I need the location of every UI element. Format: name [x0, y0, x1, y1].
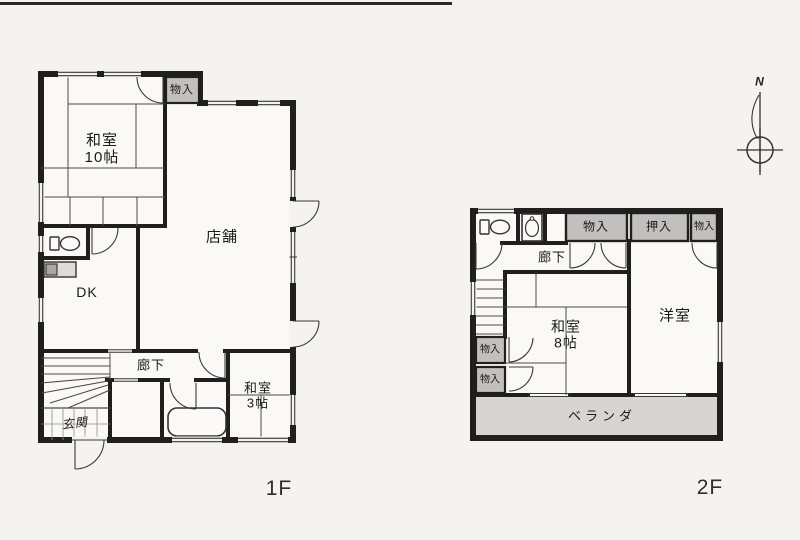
room-label-monoire-top2: 物入 — [694, 221, 714, 232]
floor1-plan — [38, 71, 320, 470]
compass-icon — [737, 92, 783, 175]
floor1-label: 1F — [266, 477, 293, 501]
room-label-monoire-1f: 物入 — [170, 84, 194, 96]
toilet-icon-1f — [50, 237, 80, 251]
room-label-monoire-top1: 物入 — [583, 220, 609, 233]
room-label-tenpo: 店舗 — [206, 230, 238, 247]
room-label-dk: DK — [76, 285, 97, 301]
room-label-rouka-2f: 廊下 — [538, 251, 566, 266]
bathtub-icon — [168, 408, 226, 436]
room-label-youshitsu: 洋室 — [659, 309, 691, 326]
floorplan-page: 和室 10帖 物入 店舗 DK 廊下 和室 3帖 玄関 1F 物入 押入 物入 … — [0, 0, 800, 540]
washbasin-icon-2f — [522, 214, 542, 241]
room-label-rouka-1f: 廊下 — [137, 359, 165, 374]
compass-north-label: N — [755, 75, 765, 88]
room-label-washitsu10: 和室 10帖 — [85, 133, 120, 167]
room-label-washitsu3: 和室 3帖 — [244, 381, 272, 410]
floorplan-scan: { "page": { "floor1_label": "1F", "floor… — [0, 0, 800, 540]
room-label-washitsu8: 和室 8帖 — [551, 319, 581, 350]
floor2-label: 2F — [697, 476, 724, 500]
room-label-monoire-left1: 物入 — [480, 344, 500, 355]
toilet-icon-2f — [480, 220, 510, 234]
room-label-oshiire: 押入 — [646, 220, 672, 233]
room-label-monoire-left2: 物入 — [480, 374, 500, 385]
floorplan-drawing — [0, 0, 800, 540]
kitchen-counter-icon — [44, 262, 76, 277]
room-label-veranda: ベランダ — [568, 410, 636, 425]
room-label-genkan: 玄関 — [61, 416, 88, 432]
scan-artifact-line — [0, 2, 452, 5]
